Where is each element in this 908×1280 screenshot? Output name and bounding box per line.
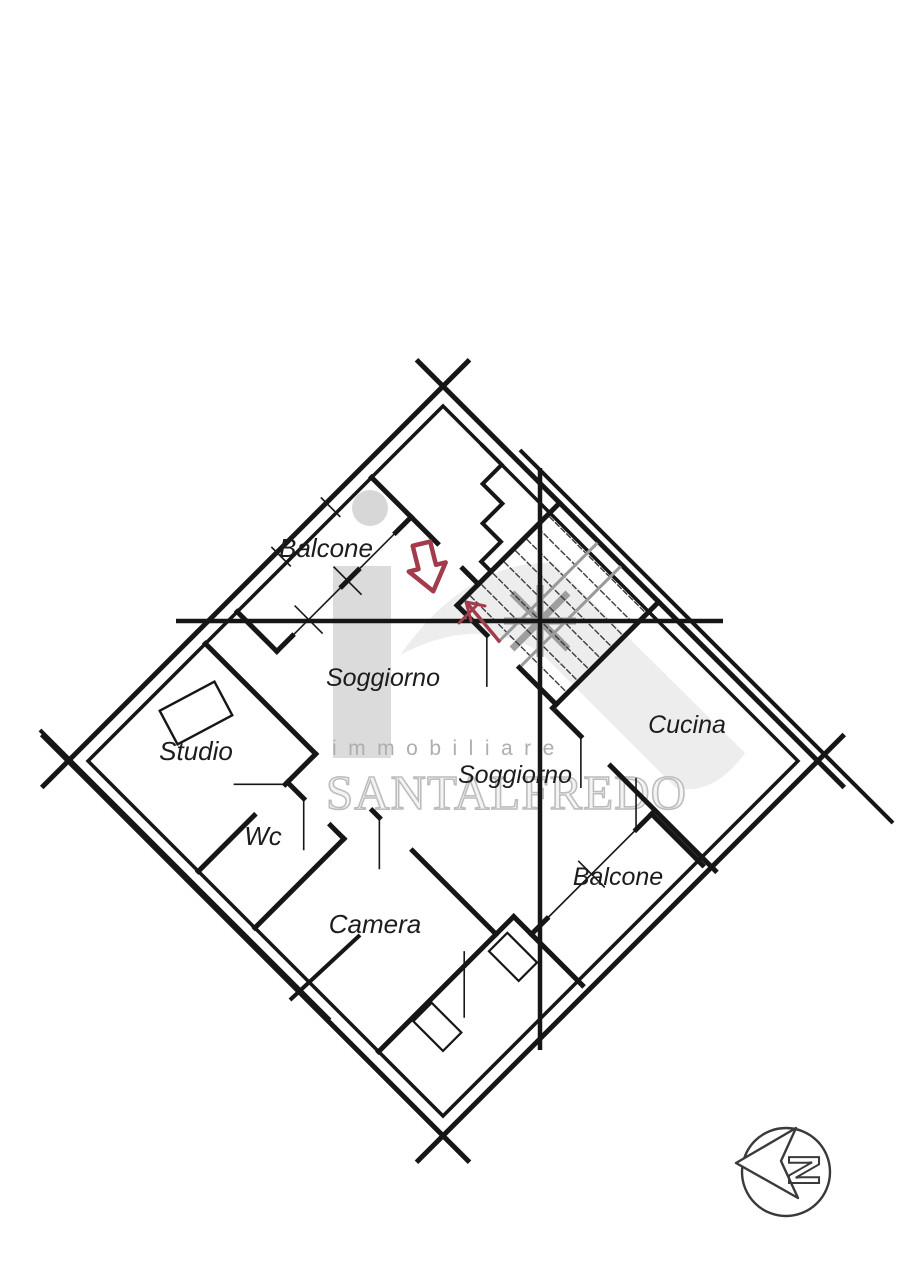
- apartment-walls: [19, 337, 868, 1186]
- room-label-soggiorno-2: Soggiorno: [458, 761, 572, 789]
- stepped-closet-wall: [424, 446, 550, 572]
- room-label-wc: Wc: [244, 821, 282, 851]
- room-label-camera: Camera: [329, 909, 421, 939]
- floor-plan-page: immobiliare SANTALFREDO: [0, 0, 908, 1280]
- outer-walls: [19, 337, 868, 1186]
- north-compass-icon: N: [736, 1128, 830, 1216]
- room-label-studio: Studio: [159, 736, 233, 766]
- entrance-down-arrow-icon: [403, 539, 452, 596]
- room-label-soggiorno-1: Soggiorno: [326, 664, 440, 692]
- studio-desk: [160, 682, 233, 745]
- fixtures: [413, 930, 537, 1054]
- north-letter: N: [779, 1154, 828, 1186]
- floor-plan-drawing: immobiliare SANTALFREDO: [0, 0, 908, 1280]
- room-label-balcone-1: Balcone: [279, 533, 373, 563]
- watermark-brand-line1: immobiliare: [332, 737, 566, 760]
- room-label-balcone-2: Balcone: [573, 863, 663, 891]
- room-label-cucina: Cucina: [648, 711, 726, 739]
